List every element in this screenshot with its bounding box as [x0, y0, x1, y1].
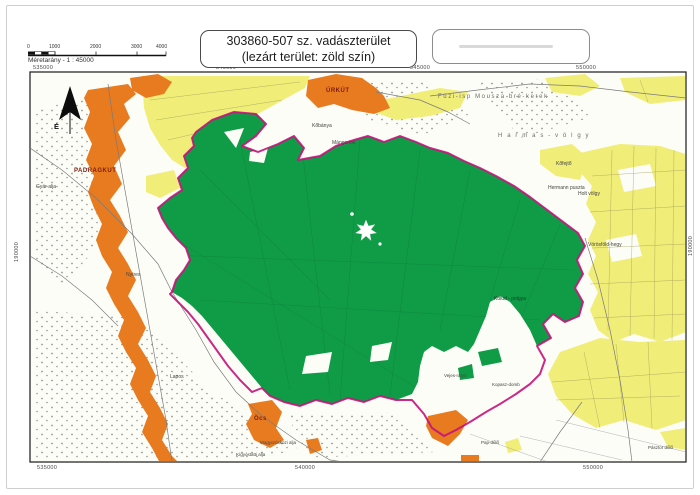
faded-print-line	[459, 45, 553, 48]
map-title-line1: 303860-507 sz. vadászterület	[227, 33, 391, 49]
scale-caption: Méretarány - 1 : 45000	[28, 57, 94, 64]
map-canvas	[0, 0, 700, 495]
scanned-hunting-area-map-page: 303860-507 sz. vadászterület (lezárt ter…	[0, 0, 700, 495]
secondary-title-box	[432, 29, 590, 64]
map-title-line2: (lezárt terület: zöld szín)	[242, 49, 375, 65]
map-title-box: 303860-507 sz. vadászterület (lezárt ter…	[200, 30, 417, 68]
scale-bar	[28, 52, 166, 56]
